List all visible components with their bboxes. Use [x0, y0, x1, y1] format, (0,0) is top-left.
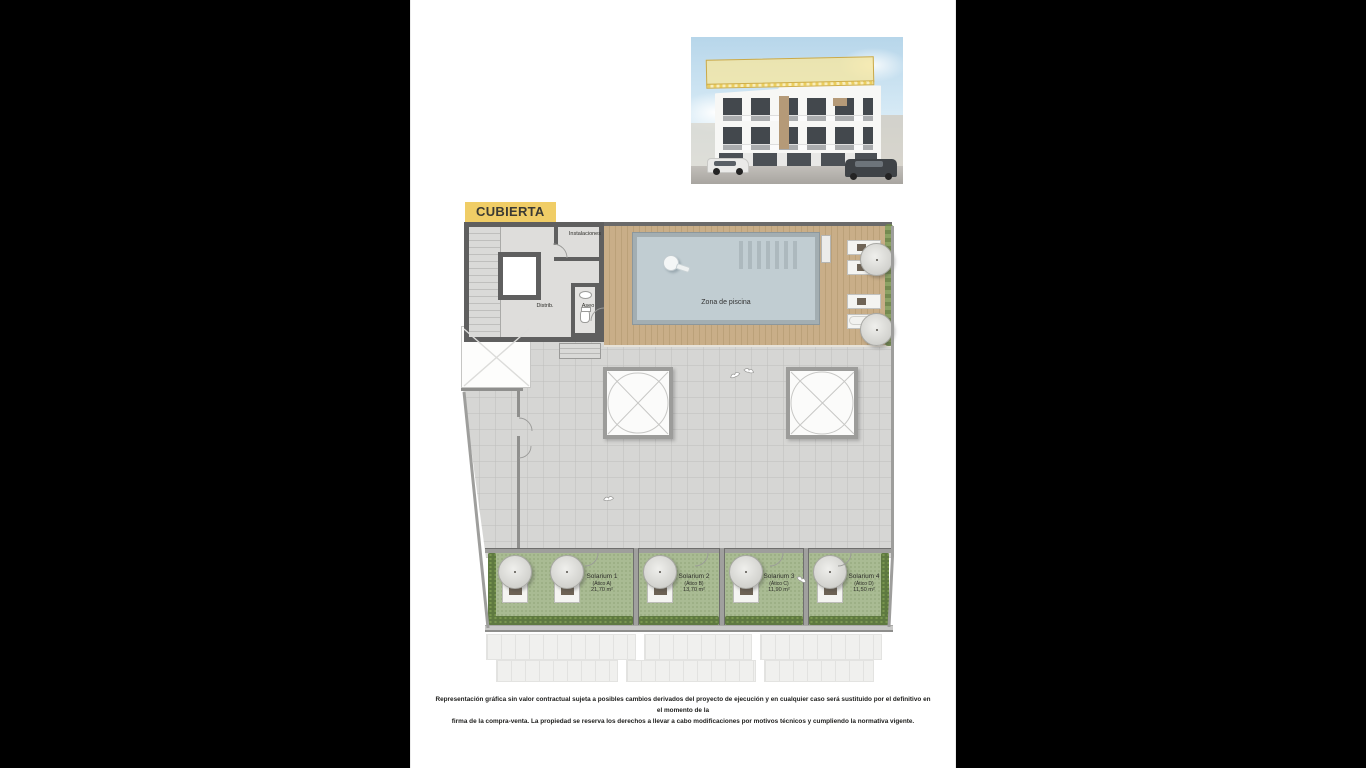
car	[707, 158, 749, 173]
floor-plan: Zona de piscina	[461, 222, 899, 634]
ghost-outline	[496, 660, 618, 682]
solarium-strip: Solarium 1 (Ático A) 21,70 m² Solarium 2…	[485, 548, 893, 632]
wheel	[736, 168, 743, 175]
building-elevation-render	[691, 37, 903, 184]
ghost-outline	[626, 660, 756, 682]
ghost-outline	[764, 660, 874, 682]
pool-steps	[739, 241, 797, 269]
wall	[554, 257, 599, 261]
swan-float-icon	[663, 255, 679, 271]
utility-block	[464, 222, 604, 342]
aseo-room	[571, 283, 599, 337]
lounger-group	[847, 292, 893, 344]
solarium-1: Solarium 1 (Ático A) 21,70 m²	[488, 553, 633, 625]
hedge	[488, 553, 496, 619]
deck-steps	[559, 343, 601, 359]
screenshot-stage: CUBIERTA Zona de piscina	[0, 0, 1366, 768]
parasol-icon	[860, 313, 893, 346]
hedge	[725, 616, 803, 625]
hedge	[809, 616, 889, 625]
facade-accent	[833, 98, 847, 106]
parasol-icon	[860, 243, 893, 276]
skylight	[786, 367, 858, 439]
windows-row	[723, 98, 873, 121]
car-window	[855, 161, 883, 167]
facade-accent	[779, 96, 789, 149]
toilet-fixture	[580, 309, 590, 323]
sink-fixture	[579, 291, 592, 299]
room-label-distribuidor: Distrib.	[525, 303, 565, 309]
car	[845, 159, 897, 177]
staircase	[469, 227, 501, 337]
ghost-outline	[486, 634, 636, 660]
lounger-group	[847, 238, 893, 290]
solarium-2: Solarium 2 (Ático B) 13,70 m²	[639, 553, 719, 625]
swimming-pool: Zona de piscina	[633, 233, 819, 324]
balcony-rail	[723, 115, 873, 121]
elevator-shaft	[498, 252, 541, 300]
room-label-instalaciones: Instalaciones	[547, 231, 601, 237]
room-label-aseo: Aseo	[573, 303, 603, 309]
wall	[517, 391, 520, 417]
disclaimer-text: Representación gráfica sin valor contrac…	[435, 694, 931, 728]
car-window	[714, 161, 736, 166]
roof-highlight-overlay	[706, 56, 875, 86]
parasol-icon	[498, 555, 532, 589]
hedge	[639, 616, 719, 625]
skylight	[603, 367, 673, 439]
solarium-3: Solarium 3 (Ático C) 11,90 m²	[725, 553, 803, 625]
wall	[485, 625, 893, 632]
ghost-outline	[644, 634, 752, 660]
solarium-label: Solarium 3 (Ático C) 11,90 m²	[757, 573, 801, 594]
solarium-label: Solarium 1 (Ático A) 21,70 m²	[576, 573, 628, 594]
wheel	[713, 168, 720, 175]
pool-label: Zona de piscina	[637, 299, 815, 306]
disclaimer-line: Representación gráfica sin valor contrac…	[435, 694, 931, 716]
hedge	[881, 553, 889, 619]
brochure-page: CUBIERTA Zona de piscina	[410, 0, 956, 768]
hedge	[488, 616, 633, 625]
pool-bench	[821, 235, 831, 263]
solarium-label: Solarium 2 (Ático B) 13,70 m²	[672, 573, 716, 594]
wheel	[850, 173, 857, 180]
page-title: CUBIERTA	[465, 202, 556, 222]
solarium-4: Solarium 4 (Ático D) 11,50 m²	[809, 553, 889, 625]
ghost-outline	[760, 634, 882, 660]
balcony-rail	[723, 144, 873, 150]
disclaimer-line: firma de la compra-venta. La propiedad s…	[435, 716, 931, 727]
wall	[461, 388, 523, 391]
windows-row	[723, 127, 873, 150]
wall	[517, 436, 520, 548]
building-facade	[715, 83, 881, 169]
wheel	[885, 173, 892, 180]
sun-lounger	[847, 294, 881, 309]
lounger-pad	[857, 298, 866, 305]
